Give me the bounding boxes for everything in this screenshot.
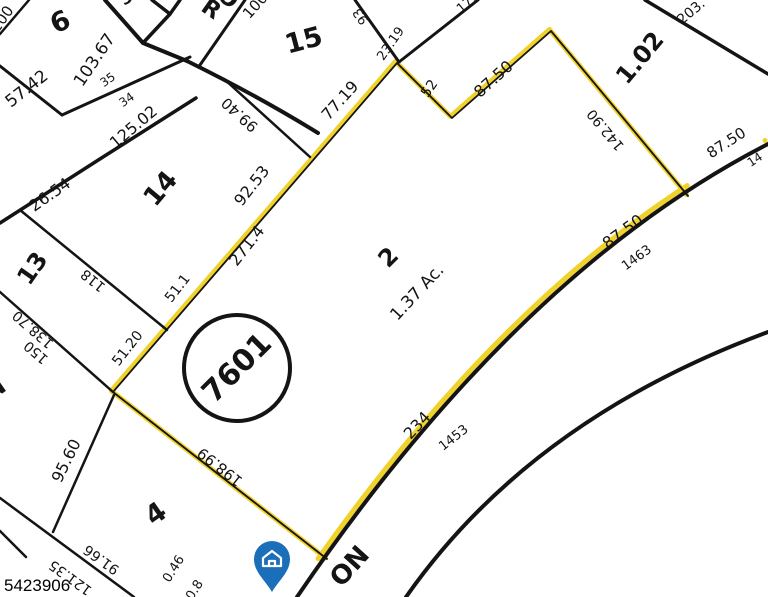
lot4-south-stub [0, 531, 26, 557]
map-label-2: 2 [373, 242, 405, 274]
block-number: 7601 [195, 326, 279, 410]
map-label-100: 100 [0, 2, 17, 36]
parcel-map-canvas: 7601 100657.42103.673534125.023RO1001599… [0, 0, 768, 597]
parcel-highlight-west-north [112, 30, 687, 391]
photo-id: 5423906 [4, 576, 70, 595]
main-road-edge-1 [297, 144, 768, 597]
map-label-1453: 1453 [436, 422, 471, 454]
main-road-edge-2 [406, 332, 768, 597]
parcel-boundary-thin [113, 31, 688, 392]
lot13-south-boundary [0, 292, 113, 392]
map-label-87-50: 87.50 [470, 57, 517, 102]
map-label-1-02: 1.02 [610, 26, 670, 89]
map-label-4: 4 [140, 496, 173, 532]
map-label-3: 3 [117, 0, 136, 9]
block-number-circle: 7601 [184, 315, 290, 421]
map-label-92-53: 92.53 [230, 162, 273, 210]
map-label-77-19: 77.19 [318, 77, 363, 124]
map-label-34: 34 [116, 90, 137, 110]
map-label-95-60: 95.60 [47, 436, 84, 486]
map-label-52: 52 [418, 77, 441, 101]
map-label-93: 93 [350, 5, 372, 27]
map-label-15: 15 [282, 21, 326, 61]
map-linework [0, 0, 768, 597]
map-label-271-4: 271.4 [225, 222, 268, 270]
map-label-13: 13 [11, 247, 53, 290]
map-label-n: N [0, 374, 11, 405]
map-label-51-20: 51.20 [109, 328, 146, 369]
map-label-6: 6 [45, 4, 75, 40]
map-label-99-40: 99.40 [218, 94, 262, 136]
map-label-0-46: 0.46 [160, 553, 188, 586]
map-label-1463: 1463 [619, 242, 655, 274]
road-fork-stem [143, 14, 170, 43]
road-fork-notch [152, 0, 180, 14]
map-label-118: 118 [78, 265, 109, 294]
map-label-0-8: 0.8 [183, 577, 207, 597]
map-label-198-99: 198.99 [194, 444, 246, 491]
map-label-14: 14 [138, 165, 184, 212]
parcel-map: 7601 100657.42103.673534125.023RO1001599… [0, 0, 768, 597]
parcel-highlight-road-edge [294, 141, 765, 594]
map-label-203-: 203. [674, 0, 708, 28]
house-pin-icon[interactable] [254, 541, 290, 592]
map-label-26-54: 26.54 [26, 174, 74, 216]
highlighted-parcel-outline [112, 30, 766, 594]
map-label-1-37-ac-: 1.37 Ac. [386, 260, 448, 324]
lot102-north-road [645, 0, 768, 74]
map-label-35: 35 [97, 70, 118, 90]
